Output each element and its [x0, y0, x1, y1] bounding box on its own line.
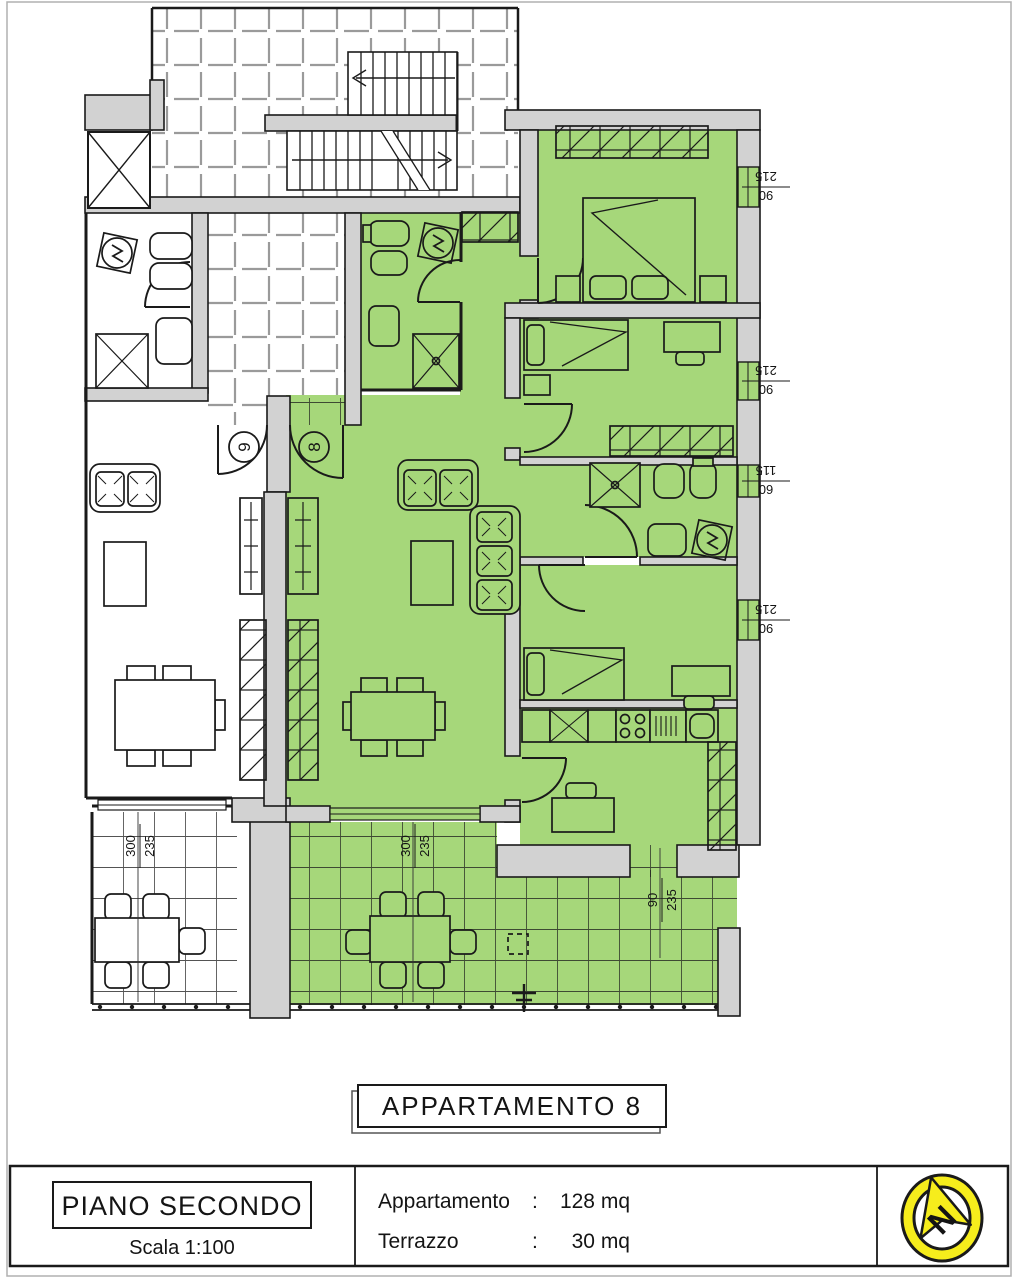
area-label: Terrazzo: [378, 1230, 459, 1253]
area-row-apartment: Appartamento : 128 mq: [378, 1190, 630, 1213]
living-wardrobe: [288, 620, 318, 780]
door-8-number: 8: [305, 442, 324, 451]
door-9-number: 9: [235, 442, 254, 451]
living-coffee-table: [411, 541, 453, 605]
svg-text:215: 215: [755, 602, 777, 617]
svg-text:60: 60: [759, 482, 773, 497]
svg-text:90: 90: [645, 893, 660, 907]
hall-wardrobe: [462, 212, 518, 242]
master-bed: [583, 198, 695, 302]
bath1-boiler: [418, 223, 458, 263]
area-value: 30 mq: [572, 1230, 630, 1253]
svg-text:235: 235: [664, 889, 679, 911]
kitchen-hob: [616, 710, 650, 742]
terrace-railing: [92, 1004, 740, 1010]
neighbor-radiator: [240, 498, 262, 594]
bath1-shower: [413, 334, 459, 388]
svg-text:235: 235: [142, 835, 157, 857]
neighbor-toilet: [150, 233, 192, 259]
area-value: 128 mq: [560, 1190, 630, 1213]
scale-label: Scala 1:100: [129, 1237, 235, 1259]
neighbor-boiler: [97, 233, 137, 273]
apartment-title-box: APPARTAMENTO 8: [352, 1085, 666, 1133]
title-block: PIANO SECONDO Scala 1:100 Appartamento :…: [10, 1166, 1008, 1266]
bed2-nightstand: [524, 375, 550, 395]
svg-text:235: 235: [417, 835, 432, 857]
svg-text:300: 300: [123, 835, 138, 857]
sliding-door-terrace: [330, 808, 480, 820]
master-nightstand-left: [556, 276, 580, 302]
bath2-bidet: [654, 464, 684, 498]
bath1-bidet: [371, 251, 407, 275]
svg-text:90: 90: [759, 188, 773, 203]
bed2-wardrobe: [610, 426, 733, 456]
neighbor-coffee-table: [104, 542, 146, 606]
floor-plan: 9 8: [0, 0, 1019, 1280]
bed2-bed: [524, 320, 628, 370]
svg-text:215: 215: [755, 363, 777, 378]
floor-plan-sheet: 9 8: [0, 0, 1019, 1280]
neighbor-sink: [156, 318, 192, 364]
bed3-bed: [524, 648, 624, 700]
svg-text:300: 300: [398, 835, 413, 857]
svg-text:215: 215: [755, 169, 777, 184]
door-badge-8: 8: [299, 432, 329, 462]
bath2-shower: [590, 463, 640, 507]
living-sofa-2seat: [398, 460, 478, 510]
kitchen-tall-unit: [708, 742, 736, 850]
neighbor-bidet: [150, 263, 192, 289]
door-badge-9: 9: [229, 432, 259, 462]
area-label: Appartamento: [378, 1190, 510, 1213]
kitchen-counter: [522, 710, 718, 742]
elevator: [88, 132, 150, 208]
bath2-sink: [648, 524, 686, 556]
bath2-boiler: [692, 520, 732, 560]
neighbor-wardrobe: [240, 620, 266, 780]
master-nightstand-right: [700, 276, 726, 302]
living-radiator: [288, 498, 318, 594]
neighbor-sofa: [90, 464, 160, 512]
floor-label: PIANO SECONDO: [61, 1191, 302, 1221]
area-separator: :: [532, 1230, 538, 1253]
bath2-toilet: [690, 458, 716, 498]
living-sofa-3seat: [470, 506, 520, 614]
area-separator: :: [532, 1190, 538, 1213]
kitchen-dishwasher: [650, 710, 686, 742]
svg-text:90: 90: [759, 382, 773, 397]
kitchen-base-unit: [550, 710, 588, 742]
svg-text:90: 90: [759, 621, 773, 636]
neighbor-dining-table: [115, 666, 225, 766]
svg-text:115: 115: [756, 463, 777, 478]
neighbor-terrace-window: [98, 800, 226, 810]
bath1-toilet: [363, 221, 409, 246]
bath1-sink: [369, 306, 399, 346]
master-wardrobe: [556, 126, 708, 158]
kitchen-sink: [686, 710, 718, 742]
neighbor-shower: [96, 334, 148, 388]
apartment-title: APPARTAMENTO 8: [382, 1091, 642, 1121]
